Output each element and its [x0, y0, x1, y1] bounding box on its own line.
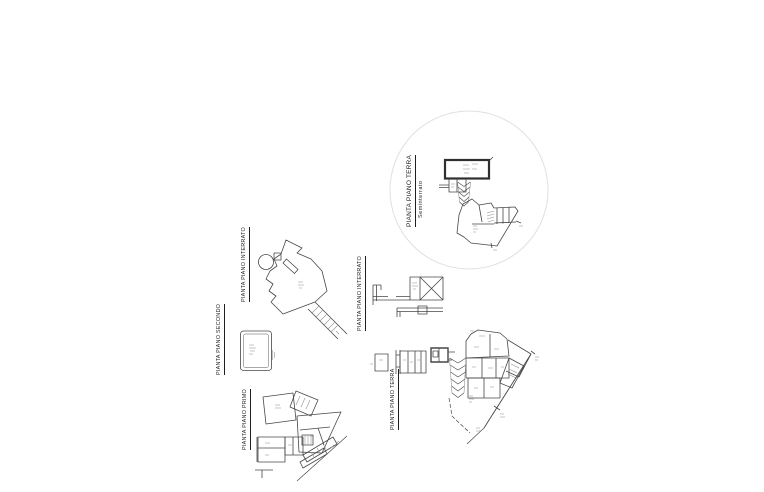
dashed-boundary: [449, 398, 470, 433]
annotation-marks: [463, 164, 478, 173]
annotation-marks: [451, 184, 523, 250]
ramp-stairs: [450, 358, 467, 398]
street-boundary-line: [297, 436, 347, 481]
stairs-corridor: [308, 302, 347, 339]
round-tower: [259, 255, 274, 270]
annotation-marks: [249, 345, 256, 354]
annotation-marks: [412, 283, 418, 289]
plan-interrato-mid-drawing: [373, 277, 443, 317]
ramp-stairs: [458, 182, 471, 206]
stairs: [305, 435, 311, 445]
plan-terra-bottom-drawing: [370, 330, 539, 444]
plan-sheet-svg: [0, 0, 764, 492]
boundary-line: [484, 354, 531, 428]
annotation-marks: [298, 282, 339, 334]
plan-interrato-top-drawing: [259, 240, 348, 339]
plan-terra-circle-drawing: [390, 111, 548, 269]
plan-secondo-drawing: [241, 331, 275, 371]
stairs: [487, 211, 494, 222]
detail-circle: [390, 111, 548, 269]
plan-primo-drawing: [255, 391, 347, 481]
crossed-area: [420, 277, 443, 300]
floor-plan-sheet: PIANTA PIANO INTERRATO PIANTA PIANO SECO…: [0, 0, 764, 492]
annotation-marks: [265, 405, 314, 455]
